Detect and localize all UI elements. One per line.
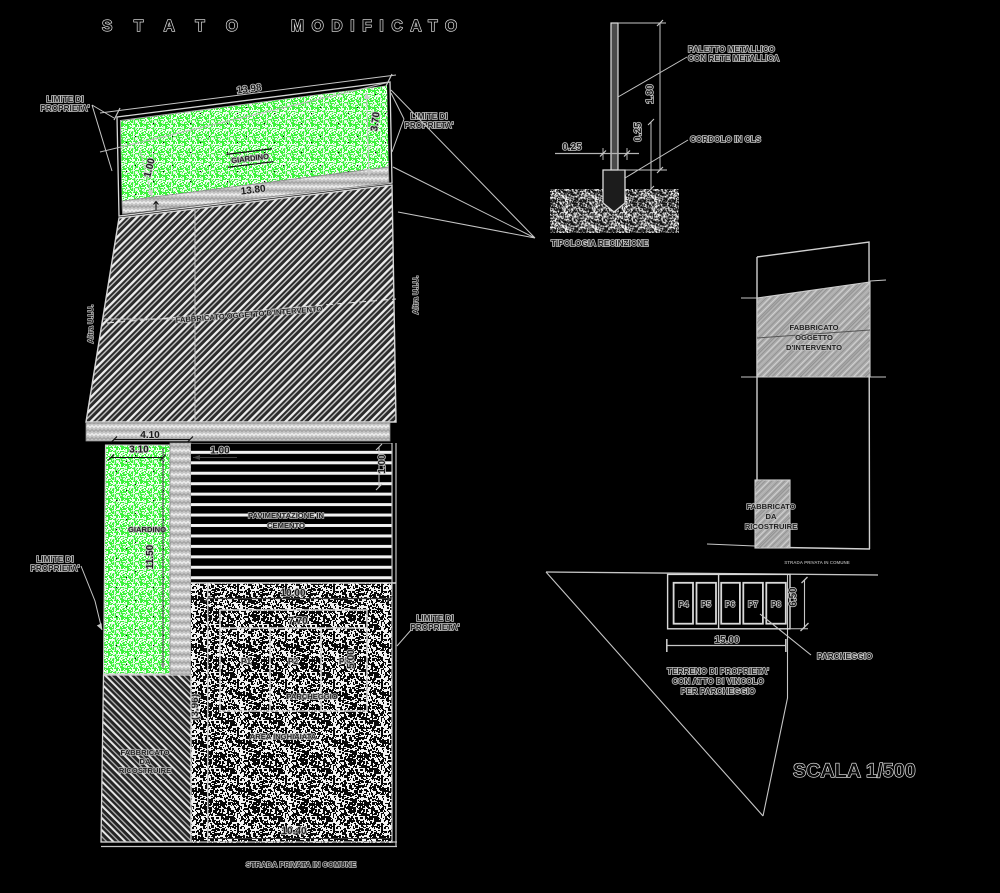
svg-text:P1: P1 <box>241 657 251 666</box>
svg-text:Altra U.I.U.: Altra U.I.U. <box>411 276 420 315</box>
svg-text:1.00: 1.00 <box>210 446 230 457</box>
svg-text:D'INTERVENTO: D'INTERVENTO <box>786 343 842 352</box>
svg-text:10.00: 10.00 <box>280 588 305 599</box>
svg-text:PAVIMENTAZIONE IN: PAVIMENTAZIONE IN <box>248 511 324 520</box>
svg-text:P8: P8 <box>771 600 781 609</box>
svg-text:11.50: 11.50 <box>145 544 156 569</box>
svg-text:CEMENTO: CEMENTO <box>267 521 305 530</box>
svg-text:1.00: 1.00 <box>377 454 388 474</box>
svg-text:CON RETE METALLICA: CON RETE METALLICA <box>688 54 779 63</box>
svg-text:SCALA 1/500: SCALA 1/500 <box>793 760 916 782</box>
svg-text:15.00: 15.00 <box>714 635 739 646</box>
svg-text:FABBRICATO: FABBRICATO <box>746 502 795 511</box>
svg-text:PALETTO METALLICO: PALETTO METALLICO <box>688 45 776 54</box>
svg-text:LIMITE DI: LIMITE DI <box>46 95 83 104</box>
svg-text:PROPRIETA': PROPRIETA' <box>40 104 89 113</box>
svg-text:RICOSTRUIRE: RICOSTRUIRE <box>119 766 171 775</box>
svg-text:STRADA PRIVATA IN COMUNE: STRADA PRIVATA IN COMUNE <box>246 860 356 869</box>
svg-text:P7: P7 <box>748 600 758 609</box>
svg-text:RICOSTRUIRE: RICOSTRUIRE <box>745 522 797 531</box>
svg-text:P6: P6 <box>725 600 735 609</box>
svg-text:PROPRIETA': PROPRIETA' <box>410 623 459 632</box>
svg-text:5.00: 5.00 <box>346 649 357 669</box>
svg-text:PROPRIETA': PROPRIETA' <box>30 564 79 573</box>
svg-text:P2: P2 <box>288 657 298 666</box>
svg-text:PARCHEGGIO: PARCHEGGIO <box>817 652 873 661</box>
svg-text:LIMITE DI: LIMITE DI <box>410 112 447 121</box>
svg-text:Altra U.I.U.: Altra U.I.U. <box>86 305 95 344</box>
svg-text:P5: P5 <box>701 600 711 609</box>
svg-text:7.70: 7.70 <box>288 616 308 627</box>
svg-text:TERRENO DI PROPRIETA': TERRENO DI PROPRIETA' <box>667 667 769 676</box>
svg-text:0.25: 0.25 <box>633 122 644 142</box>
svg-text:STRADA PRIVATA IN COMUNE: STRADA PRIVATA IN COMUNE <box>784 560 849 565</box>
svg-text:PER PARCHEGGIO: PER PARCHEGGIO <box>681 687 756 696</box>
svg-text:CON ATTO DI VINCOLO: CON ATTO DI VINCOLO <box>672 677 764 686</box>
svg-text:PARCHEGGIO: PARCHEGGIO <box>286 692 337 701</box>
svg-text:10.40: 10.40 <box>281 826 306 837</box>
svg-text:FABBRICATO: FABBRICATO <box>120 748 169 757</box>
svg-text:DA: DA <box>140 757 151 766</box>
svg-text:3.10: 3.10 <box>129 445 149 456</box>
svg-text:AREA INGHIAIATA: AREA INGHIAIATA <box>250 732 317 741</box>
svg-text:6.50: 6.50 <box>788 587 799 607</box>
svg-text:OGGETTO: OGGETTO <box>795 333 833 342</box>
svg-text:LIMITE DI: LIMITE DI <box>416 614 453 623</box>
svg-text:FABBRICATO: FABBRICATO <box>789 323 838 332</box>
svg-text:MODIFICATO: MODIFICATO <box>291 18 465 35</box>
svg-text:CORDOLO IN CLS: CORDOLO IN CLS <box>690 135 761 144</box>
svg-text:4.10: 4.10 <box>140 430 160 441</box>
svg-text:DA: DA <box>766 512 777 521</box>
svg-text:0.25: 0.25 <box>562 142 582 153</box>
svg-text:TIPOLOGIA RECINZIONE: TIPOLOGIA RECINZIONE <box>551 239 649 248</box>
svg-text:STATO: STATO <box>102 18 259 35</box>
svg-text:LIMITE DI: LIMITE DI <box>36 555 73 564</box>
svg-text:P4: P4 <box>678 600 688 609</box>
svg-text:1.80: 1.80 <box>645 84 656 104</box>
svg-text:GIARDINO: GIARDINO <box>128 525 166 534</box>
